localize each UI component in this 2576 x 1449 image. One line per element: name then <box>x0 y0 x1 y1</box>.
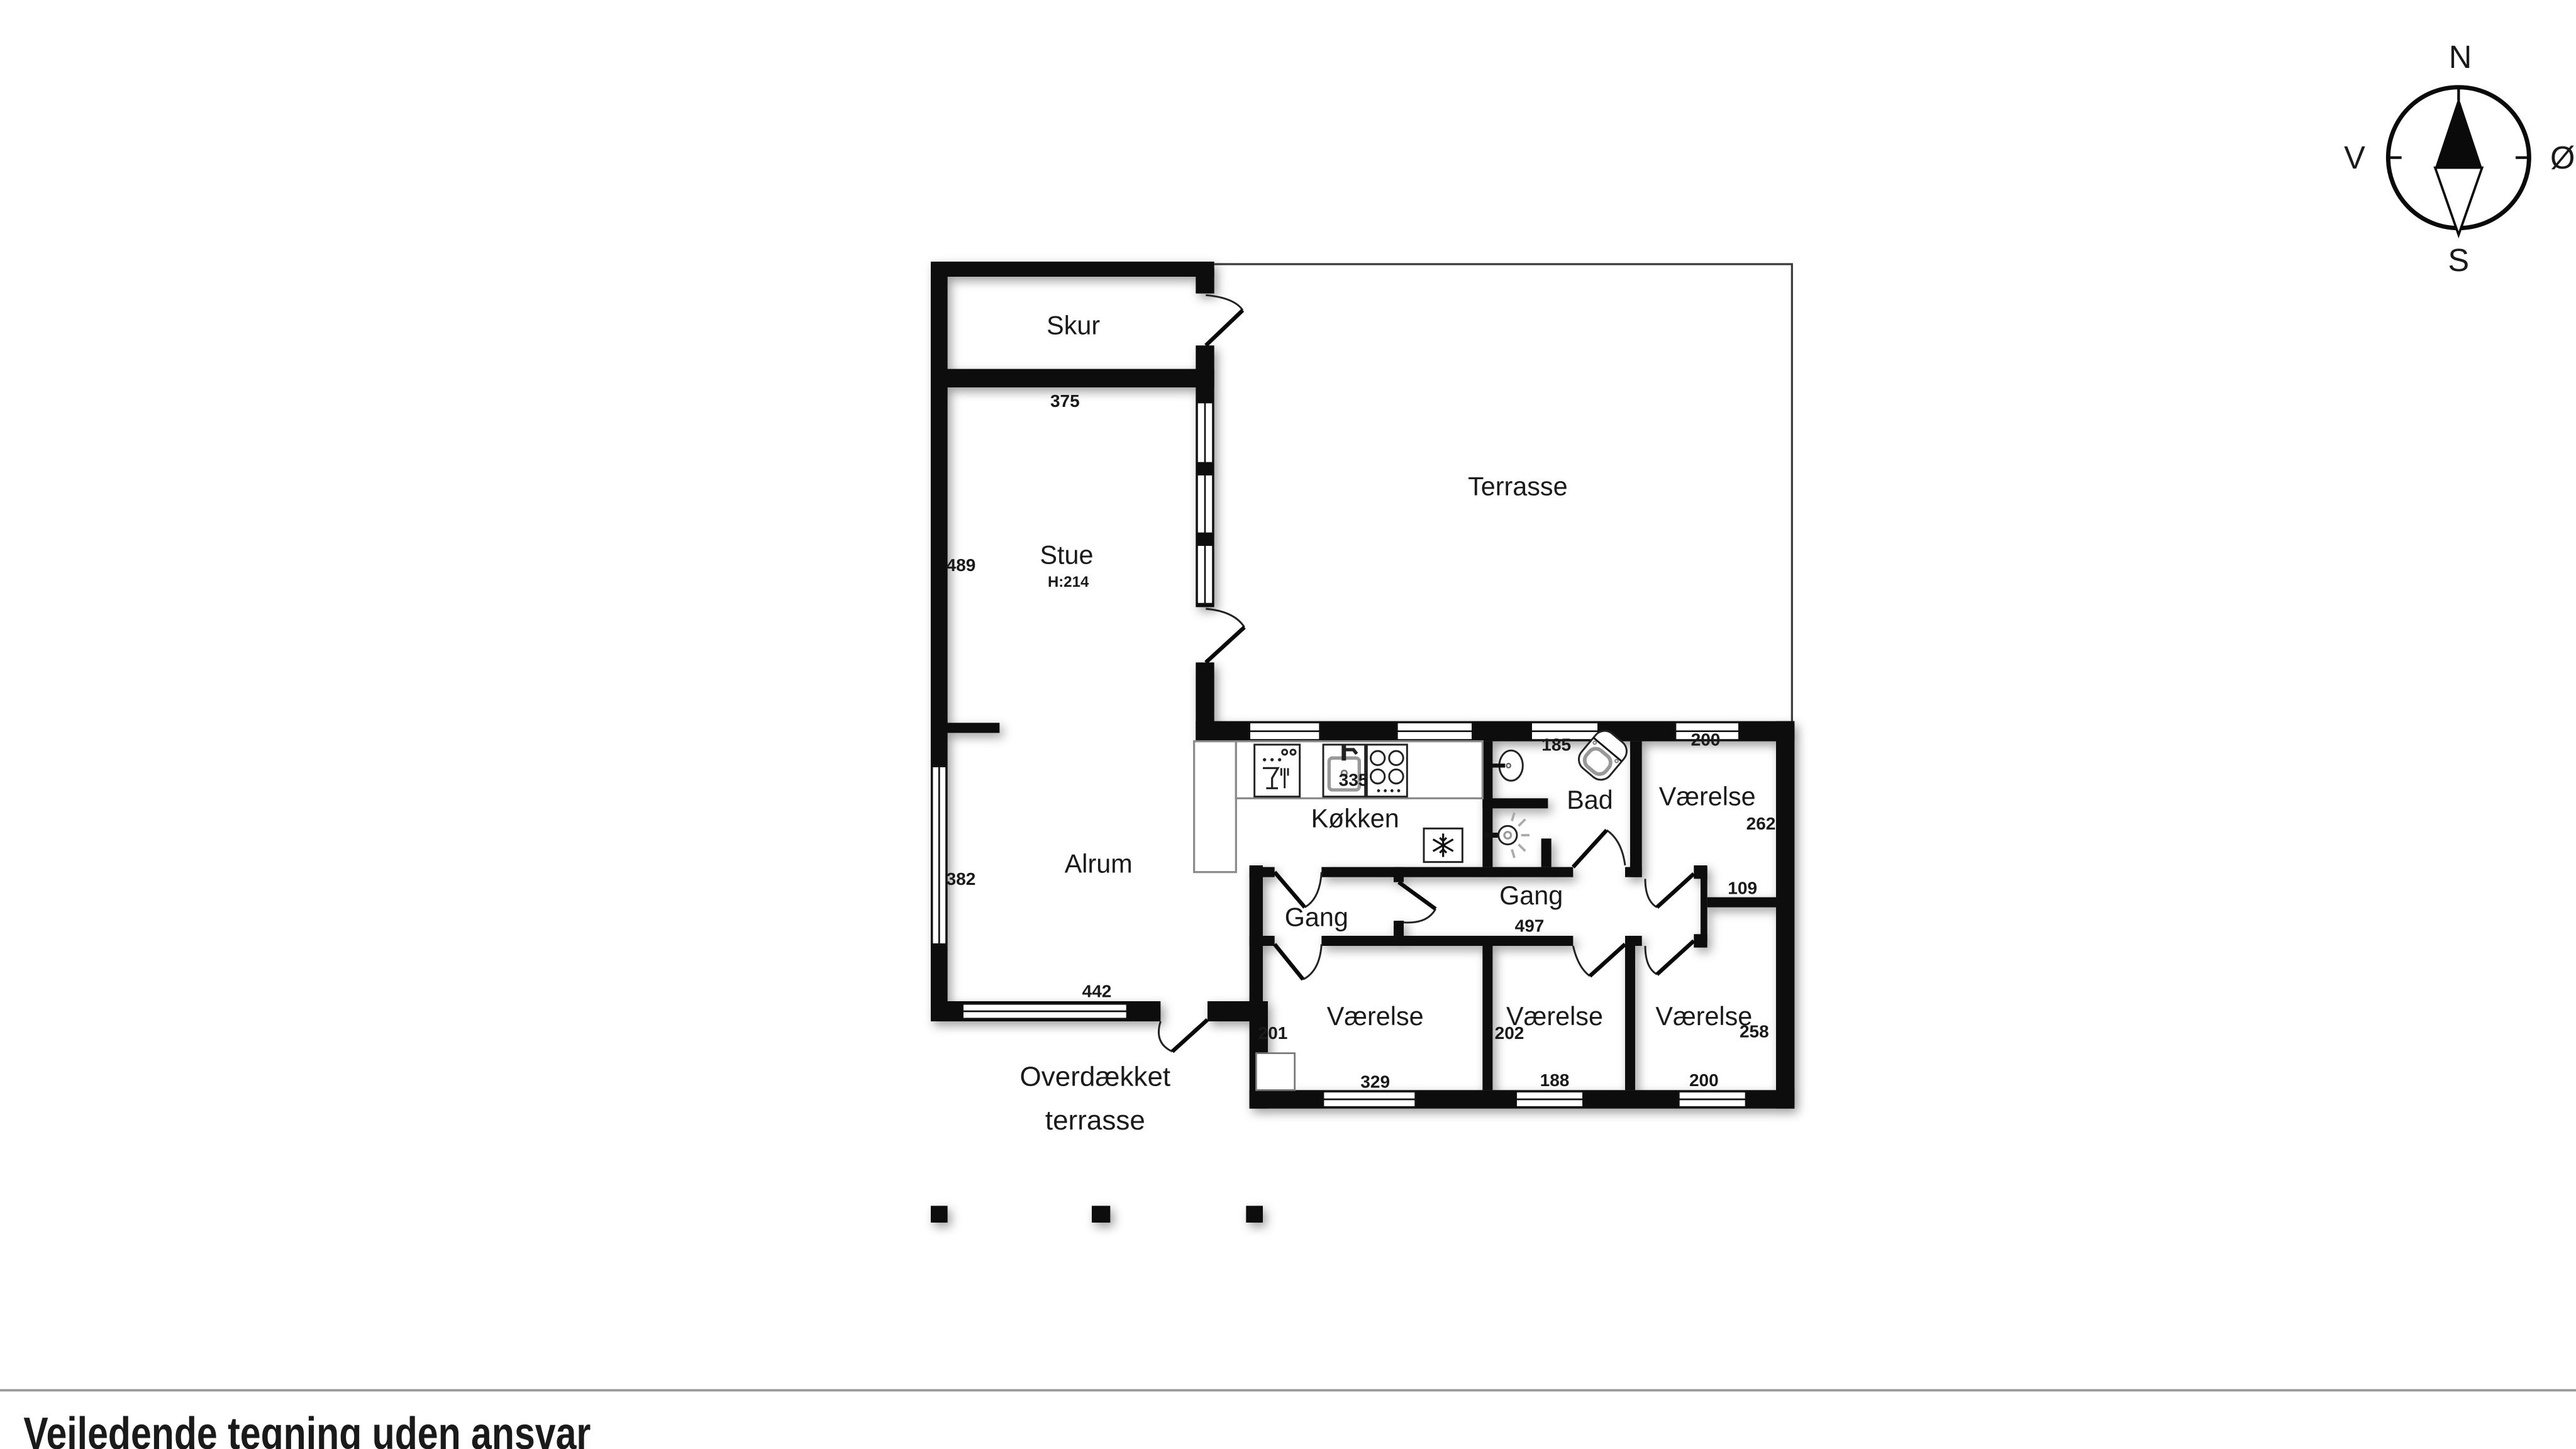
room-label-gang-vest: Gang <box>1285 903 1348 932</box>
bathroom-sink-icon <box>1492 750 1523 780</box>
wall-segment <box>1250 867 1275 877</box>
wall-segment <box>1776 721 1794 1109</box>
door-vaerelse-se <box>1645 941 1694 974</box>
window <box>1250 723 1320 740</box>
window <box>1197 475 1213 533</box>
room-label-overdaekket-line1: Overdækket <box>1020 1062 1171 1092</box>
room-label-skur: Skur <box>1046 311 1100 340</box>
wall-segment <box>931 262 1214 277</box>
wall-segment <box>1707 897 1776 908</box>
wall-segment <box>931 723 999 733</box>
wall-segment <box>1394 921 1404 936</box>
dim-stue-ceiling: H:214 <box>1048 574 1089 591</box>
floor-plan-drawing: Skur 375 Stue H:214 489 Terrasse Alrum 3… <box>0 0 2576 1449</box>
wall-segment <box>1250 865 1263 1001</box>
room-label-alrum: Alrum <box>1065 849 1133 878</box>
terrace-post <box>1246 1206 1263 1223</box>
dim-alrum-depth: 382 <box>947 869 976 889</box>
dim-vaerelse-se-depth: 258 <box>1740 1022 1769 1041</box>
room-label-vaerelse-sv: Værelse <box>1327 1002 1424 1031</box>
door-gang-gang <box>1399 882 1436 923</box>
door-koekken-gang <box>1275 872 1322 908</box>
wall-segment <box>1482 798 1548 808</box>
window <box>1397 723 1472 740</box>
door-bad <box>1573 830 1625 867</box>
wall-segment <box>1625 867 1642 877</box>
window <box>1197 545 1213 604</box>
wall-segment <box>1250 936 1275 946</box>
wall-segment <box>1630 741 1642 877</box>
dim-gang-length: 497 <box>1515 916 1545 936</box>
window <box>1323 1092 1416 1108</box>
terrace-post <box>931 1206 948 1223</box>
window <box>963 1004 1127 1018</box>
wall-segment <box>931 369 1214 387</box>
door-alrum-entrance <box>1158 1019 1207 1052</box>
dim-koekken-width: 335 <box>1339 770 1368 790</box>
wall-segment <box>1482 946 1492 1090</box>
wall-segment <box>1541 838 1552 867</box>
compass: N S Ø V <box>2344 39 2575 278</box>
dim-vaerelse-ne-depth: 262 <box>1746 814 1776 833</box>
room-label-gang: Gang <box>1499 881 1563 910</box>
wall-segment <box>1321 867 1573 877</box>
dim-vaerelse-s-width: 188 <box>1540 1070 1570 1090</box>
compass-label-south: S <box>2448 242 2469 278</box>
dim-bad-width: 185 <box>1541 735 1571 755</box>
window <box>932 767 946 945</box>
wall-segment <box>1321 936 1573 946</box>
room-label-overdaekket-line2: terrasse <box>1045 1105 1145 1136</box>
door-gang-vaerelse-sv <box>1275 944 1322 979</box>
wall-segment <box>1394 867 1404 882</box>
floor-plan-page: Skur 375 Stue H:214 489 Terrasse Alrum 3… <box>0 0 2576 1449</box>
dim-stue-depth: 489 <box>947 555 976 575</box>
dim-vaerelse-sv-width: 329 <box>1360 1072 1390 1092</box>
room-label-vaerelse-se: Værelse <box>1655 1002 1752 1031</box>
door-vaerelse-ne <box>1645 874 1694 907</box>
room-label-vaerelse-ne: Værelse <box>1659 782 1756 811</box>
compass-needle-north <box>2435 97 2482 168</box>
dim-vaerelse-s-depth: 202 <box>1495 1023 1524 1043</box>
wall-segment <box>1701 867 1707 941</box>
wall-segment <box>1196 269 1214 294</box>
wall-segment <box>1625 946 1635 1090</box>
disclaimer-text: Vejledende tegning uden ansvar <box>23 1407 591 1449</box>
dim-gang-nook: 109 <box>1728 879 1757 898</box>
door-skur <box>1206 295 1243 345</box>
compass-label-east: Ø <box>2550 140 2575 175</box>
room-label-koekken: Køkken <box>1311 804 1399 833</box>
terrace-post <box>1092 1206 1110 1223</box>
dim-vaerelse-sv-depth: 201 <box>1258 1023 1288 1043</box>
closet <box>1256 1053 1294 1091</box>
door-vaerelse-s <box>1573 944 1625 976</box>
room-label-bad: Bad <box>1567 786 1613 814</box>
compass-label-west: V <box>2344 140 2365 175</box>
room-label-terrasse: Terrasse <box>1468 472 1567 501</box>
fridge-icon <box>1424 828 1462 862</box>
wall-segment <box>1196 345 1214 387</box>
dim-alrum-width: 442 <box>1082 982 1112 1001</box>
dishwasher-icon <box>1255 745 1300 797</box>
dim-vaerelse-se-width: 200 <box>1689 1070 1719 1090</box>
compass-label-north: N <box>2449 39 2472 75</box>
door-stue-terrasse <box>1206 609 1244 662</box>
stove-icon <box>1367 745 1407 797</box>
room-label-stue: Stue <box>1040 541 1093 570</box>
dim-skur-width: 375 <box>1050 391 1080 411</box>
dim-vaerelse-ne-width: 200 <box>1691 730 1721 750</box>
window <box>1197 402 1213 463</box>
window <box>1679 1092 1746 1108</box>
wall-segment <box>1625 936 1642 946</box>
window <box>1516 1092 1584 1108</box>
